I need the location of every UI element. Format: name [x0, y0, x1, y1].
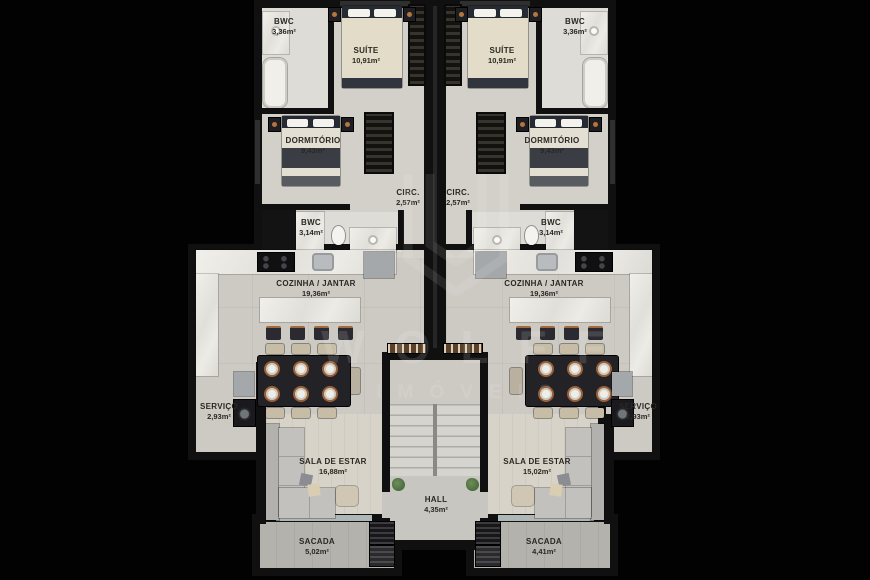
bed-foot	[282, 176, 340, 186]
pillow	[307, 483, 321, 497]
right-dorm-window	[610, 120, 615, 184]
room-label-bwc-suite-left: BWC3,36m²	[272, 17, 296, 37]
chair	[292, 344, 310, 354]
brand-tagline-watermark: IMÓVEIS	[376, 382, 567, 404]
right-toilet	[525, 226, 538, 245]
room-label-dormitorio-left: DORMITÓRIO9,43m²	[286, 136, 341, 156]
place-setting	[596, 386, 612, 402]
plant	[466, 478, 479, 491]
pillow	[474, 9, 496, 17]
left-bwc-suite-tub	[263, 58, 287, 108]
ottoman	[336, 486, 358, 506]
nightstand	[404, 8, 415, 21]
left-grill	[370, 522, 394, 544]
chair	[318, 408, 336, 418]
wall	[188, 452, 266, 460]
right-bwc-suite-basin	[589, 26, 599, 36]
stair-divider	[433, 404, 437, 476]
pillow	[348, 9, 370, 17]
place-setting	[322, 386, 338, 402]
left-island	[260, 298, 360, 322]
place-setting	[293, 386, 309, 402]
chair	[560, 408, 578, 418]
wall	[536, 8, 542, 110]
stool	[290, 326, 305, 340]
plant	[392, 478, 405, 491]
room-label-bwc-social-right: BWC3,14m²	[539, 218, 563, 238]
left-sofa-back	[266, 424, 279, 520]
pillow	[374, 9, 396, 17]
wall	[188, 244, 196, 460]
pillow	[561, 119, 582, 127]
place-setting	[264, 361, 280, 377]
nightstand	[590, 118, 601, 131]
pillow	[500, 9, 522, 17]
right-sink	[536, 253, 558, 271]
chair	[534, 408, 552, 418]
pillow	[549, 483, 563, 497]
room-label-servico-left: SERVIÇO2,93m²	[200, 402, 238, 422]
right-grill-shelf	[476, 546, 500, 566]
pillow	[313, 119, 334, 127]
wall	[604, 414, 614, 524]
room-label-servico-right: SERVIÇO2,93m²	[619, 402, 657, 422]
nightstand	[329, 8, 340, 21]
left-side-counter	[196, 274, 218, 376]
left-grill-shelf	[370, 546, 394, 566]
wall	[520, 204, 612, 210]
nightstand	[342, 118, 353, 131]
right-sofa-back	[591, 424, 604, 520]
chair	[266, 408, 284, 418]
left-laundry-cabinet	[234, 372, 254, 396]
right-island	[510, 298, 610, 322]
pillow	[535, 119, 556, 127]
left-sink	[312, 253, 334, 271]
brand-watermark: WOLFF	[321, 320, 635, 374]
place-setting	[264, 386, 280, 402]
room-label-cozinha-left: COZINHA / JANTAR19,36m²	[276, 279, 355, 299]
right-grill	[476, 522, 500, 544]
stool	[266, 326, 281, 340]
bed-foot	[530, 176, 588, 186]
floorplan-canvas: BWC3,36m² SUÍTE10,91m² DORMITÓRIO9,43m² …	[0, 0, 870, 580]
right-bwc-suite-tub	[583, 58, 607, 108]
left-dorm-window	[255, 120, 260, 184]
left-dorm-wardrobe	[366, 114, 392, 172]
wall	[258, 108, 334, 114]
room-label-hall: HALL4,35m²	[424, 495, 448, 515]
left-bwc-basin	[368, 235, 378, 245]
bed-foot	[468, 78, 528, 88]
room-label-sala-left: SALA DE ESTAR16,88m²	[299, 457, 366, 477]
place-setting	[293, 361, 309, 377]
wall	[252, 568, 402, 576]
bed-foot	[342, 78, 402, 88]
chair	[266, 344, 284, 354]
ottoman	[512, 486, 534, 506]
wall	[536, 108, 612, 114]
room-label-suite-right: SUÍTE10,91m²	[488, 46, 516, 66]
place-setting	[567, 386, 583, 402]
right-cooktop	[576, 253, 612, 271]
right-duct	[574, 210, 612, 254]
room-label-bwc-social-left: BWC3,14m²	[299, 218, 323, 238]
left-duct	[258, 210, 296, 254]
chair	[292, 408, 310, 418]
left-fridge	[364, 252, 394, 278]
left-entry-door-gap	[382, 492, 390, 518]
room-label-suite-left: SUÍTE10,91m²	[352, 46, 380, 66]
room-label-sacada-left: SACADA5,02m²	[299, 537, 335, 557]
wall	[610, 514, 618, 576]
left-toilet	[332, 226, 345, 245]
right-entry-door-gap	[480, 492, 488, 518]
room-label-cozinha-right: COZINHA / JANTAR19,36m²	[504, 279, 583, 299]
room-label-sala-right: SALA DE ESTAR15,02m²	[503, 457, 570, 477]
right-laundry-cabinet	[612, 372, 632, 396]
nightstand	[269, 118, 280, 131]
wall	[466, 568, 618, 576]
chair	[586, 408, 604, 418]
left-sofa-chaise	[279, 488, 335, 518]
room-label-sacada-right: SACADA4,41m²	[526, 537, 562, 557]
brand-logo-watermark	[400, 170, 512, 298]
nightstand	[517, 118, 528, 131]
room-label-bwc-suite-right: BWC3,36m²	[563, 17, 587, 37]
right-dorm-wardrobe	[478, 114, 504, 172]
pillow	[287, 119, 308, 127]
wall	[328, 8, 334, 110]
room-label-dormitorio-right: DORMITÓRIO9,43m²	[525, 136, 580, 156]
wall	[258, 204, 350, 210]
right-sofa-chaise	[535, 488, 591, 518]
nightstand	[456, 8, 467, 21]
nightstand	[530, 8, 541, 21]
left-cooktop	[258, 253, 294, 271]
wall	[652, 244, 660, 460]
wall	[252, 514, 260, 576]
